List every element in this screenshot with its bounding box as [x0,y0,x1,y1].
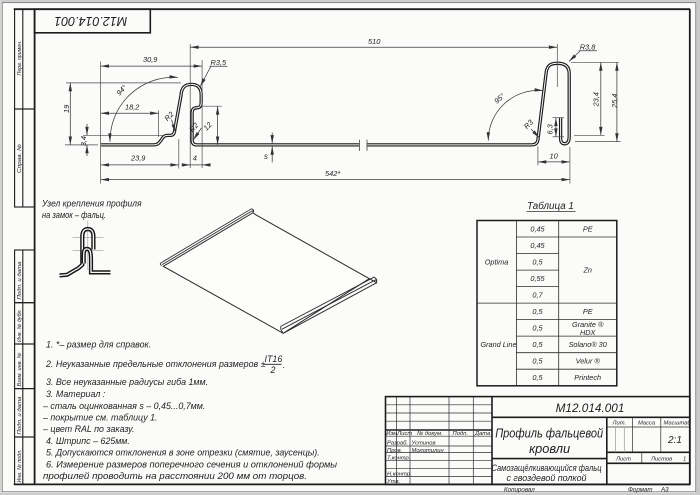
svg-text:6,3: 6,3 [546,123,555,134]
svg-text:23,4: 23,4 [592,92,601,107]
svg-text:Копировал: Копировал [504,486,535,493]
svg-text:Solano® 30: Solano® 30 [569,340,607,349]
svg-text:2: 2 [270,365,276,375]
svg-text:25,4: 25,4 [610,94,619,109]
svg-text:s: s [264,152,268,161]
svg-text:R3: R3 [522,117,536,131]
svg-text:М12.014.001: М12.014.001 [54,14,127,28]
svg-text:23,9: 23,9 [130,154,145,163]
svg-text:Устинов: Устинов [411,441,436,447]
svg-text:0,55: 0,55 [530,274,545,283]
svg-text:R2: R2 [162,110,175,123]
svg-text:А3: А3 [660,486,669,493]
svg-text:Масштаб: Масштаб [664,421,692,427]
svg-text:0,5: 0,5 [532,373,543,382]
svg-text:R3,5: R3,5 [211,58,228,67]
svg-text:6. Измерение размеров поперечн: 6. Измерение размеров поперечного сечени… [46,459,337,469]
svg-text:Н.контр.: Н.контр. [387,471,412,477]
svg-text:542*: 542* [325,169,341,178]
svg-text:0,7: 0,7 [532,291,543,300]
svg-text:Лист: Лист [615,457,631,463]
svg-text:Лист: Лист [396,431,412,437]
svg-text:Zn: Zn [582,266,592,275]
svg-text:Масса: Масса [638,421,656,427]
svg-text:94°: 94° [114,83,128,97]
svg-text:с гвоздевой полкой: с гвоздевой полкой [507,473,588,484]
svg-text:30,9: 30,9 [143,55,157,64]
svg-text:Узел крепления профиля: Узел крепления профиля [41,198,141,209]
svg-text:10: 10 [550,151,559,160]
svg-text:Формат: Формат [628,486,653,493]
svg-text:кровли: кровли [529,441,570,456]
svg-text:12: 12 [201,120,213,132]
svg-text:Пров.: Пров. [387,448,402,454]
svg-text:PE: PE [583,225,593,234]
svg-text:0,45: 0,45 [530,241,545,250]
svg-text:19: 19 [62,105,71,113]
svg-text:2. Неуказанные предельные отк: 2. Неуказанные предельные отклонения раз… [45,359,266,369]
svg-text:Grand Line: Grand Line [480,340,516,349]
svg-text:Утв.: Утв. [386,479,400,485]
svg-text:1. *– размер для справок.: 1. *– размер для справок. [46,340,151,350]
svg-text:5. Допускаются отклонения в з: 5. Допускаются отклонения в зоне отрезки… [46,448,320,458]
svg-text:Разраб.: Разраб. [387,441,408,447]
svg-text:IT16: IT16 [265,354,283,364]
svg-text:– покрытие см. таблицу 1.: – покрытие см. таблицу 1. [42,413,158,423]
svg-text:Optima: Optima [485,258,509,267]
svg-text:0,5: 0,5 [532,357,543,366]
svg-text:1: 1 [683,457,686,463]
svg-text:Справ. №: Справ. № [17,144,23,173]
svg-text:Лит.: Лит. [612,421,627,427]
svg-text:– сталь оцинкованная s – 0,45.: – сталь оцинкованная s – 0,45...0,7мм. [42,401,205,411]
svg-text:М12.014.001: М12.014.001 [556,401,625,415]
svg-text:Дата: Дата [474,431,491,437]
svg-text:Printech: Printech [574,373,601,382]
svg-text:№ докум.: № докум. [417,431,443,437]
svg-text:0,5: 0,5 [532,258,543,267]
svg-text:0,5: 0,5 [532,324,543,333]
svg-text:Подп.: Подп. [453,431,468,437]
svg-text:0,5: 0,5 [532,307,543,316]
svg-text:2:1: 2:1 [667,435,682,446]
svg-text:Velur ®: Velur ® [576,357,601,366]
svg-text:3,4: 3,4 [79,136,88,146]
svg-text:Инв. № дубл.: Инв. № дубл. [17,309,23,342]
svg-text:3. Материал :: 3. Материал : [46,389,106,399]
svg-text:– цвет RAL по заказу.: – цвет RAL по заказу. [42,424,135,434]
svg-text:4. Штрипс – 625мм.: 4. Штрипс – 625мм. [46,436,130,446]
svg-text:0,5: 0,5 [532,340,543,349]
svg-text:0,45: 0,45 [530,225,545,234]
svg-text:510: 510 [368,37,381,46]
svg-text:Листов: Листов [650,457,672,463]
svg-text:Таблица 1: Таблица 1 [527,201,574,212]
svg-text:18,2: 18,2 [125,102,139,111]
svg-text:R3,8: R3,8 [580,42,597,51]
svg-text:Перв. примен.: Перв. примен. [17,41,23,76]
svg-text:профилей проводить на расстоян: профилей проводить на расстоянии 200 мм … [43,471,307,481]
svg-text:.: . [283,360,285,370]
svg-text:4: 4 [193,154,197,163]
svg-text:Подп. и дата: Подп. и дата [17,397,23,435]
svg-text:PE: PE [583,307,593,316]
svg-text:Взам. инв. №: Взам. инв. № [17,353,23,387]
svg-text:Т.контр.: Т.контр. [387,455,410,461]
svg-text:3. Все неуказанные радиусы ги: 3. Все неуказанные радиусы гиба 1мм. [46,377,208,387]
svg-text:Инв. № подл.: Инв. № подл. [17,450,23,483]
svg-text:Подп. и дата: Подп. и дата [17,262,23,300]
svg-text:на замок – фальц.: на замок – фальц. [42,209,106,220]
svg-text:Профиль фальцевой: Профиль фальцевой [495,425,603,440]
svg-text:Молотилин: Молотилин [412,448,445,454]
svg-text:HDX: HDX [580,328,597,337]
